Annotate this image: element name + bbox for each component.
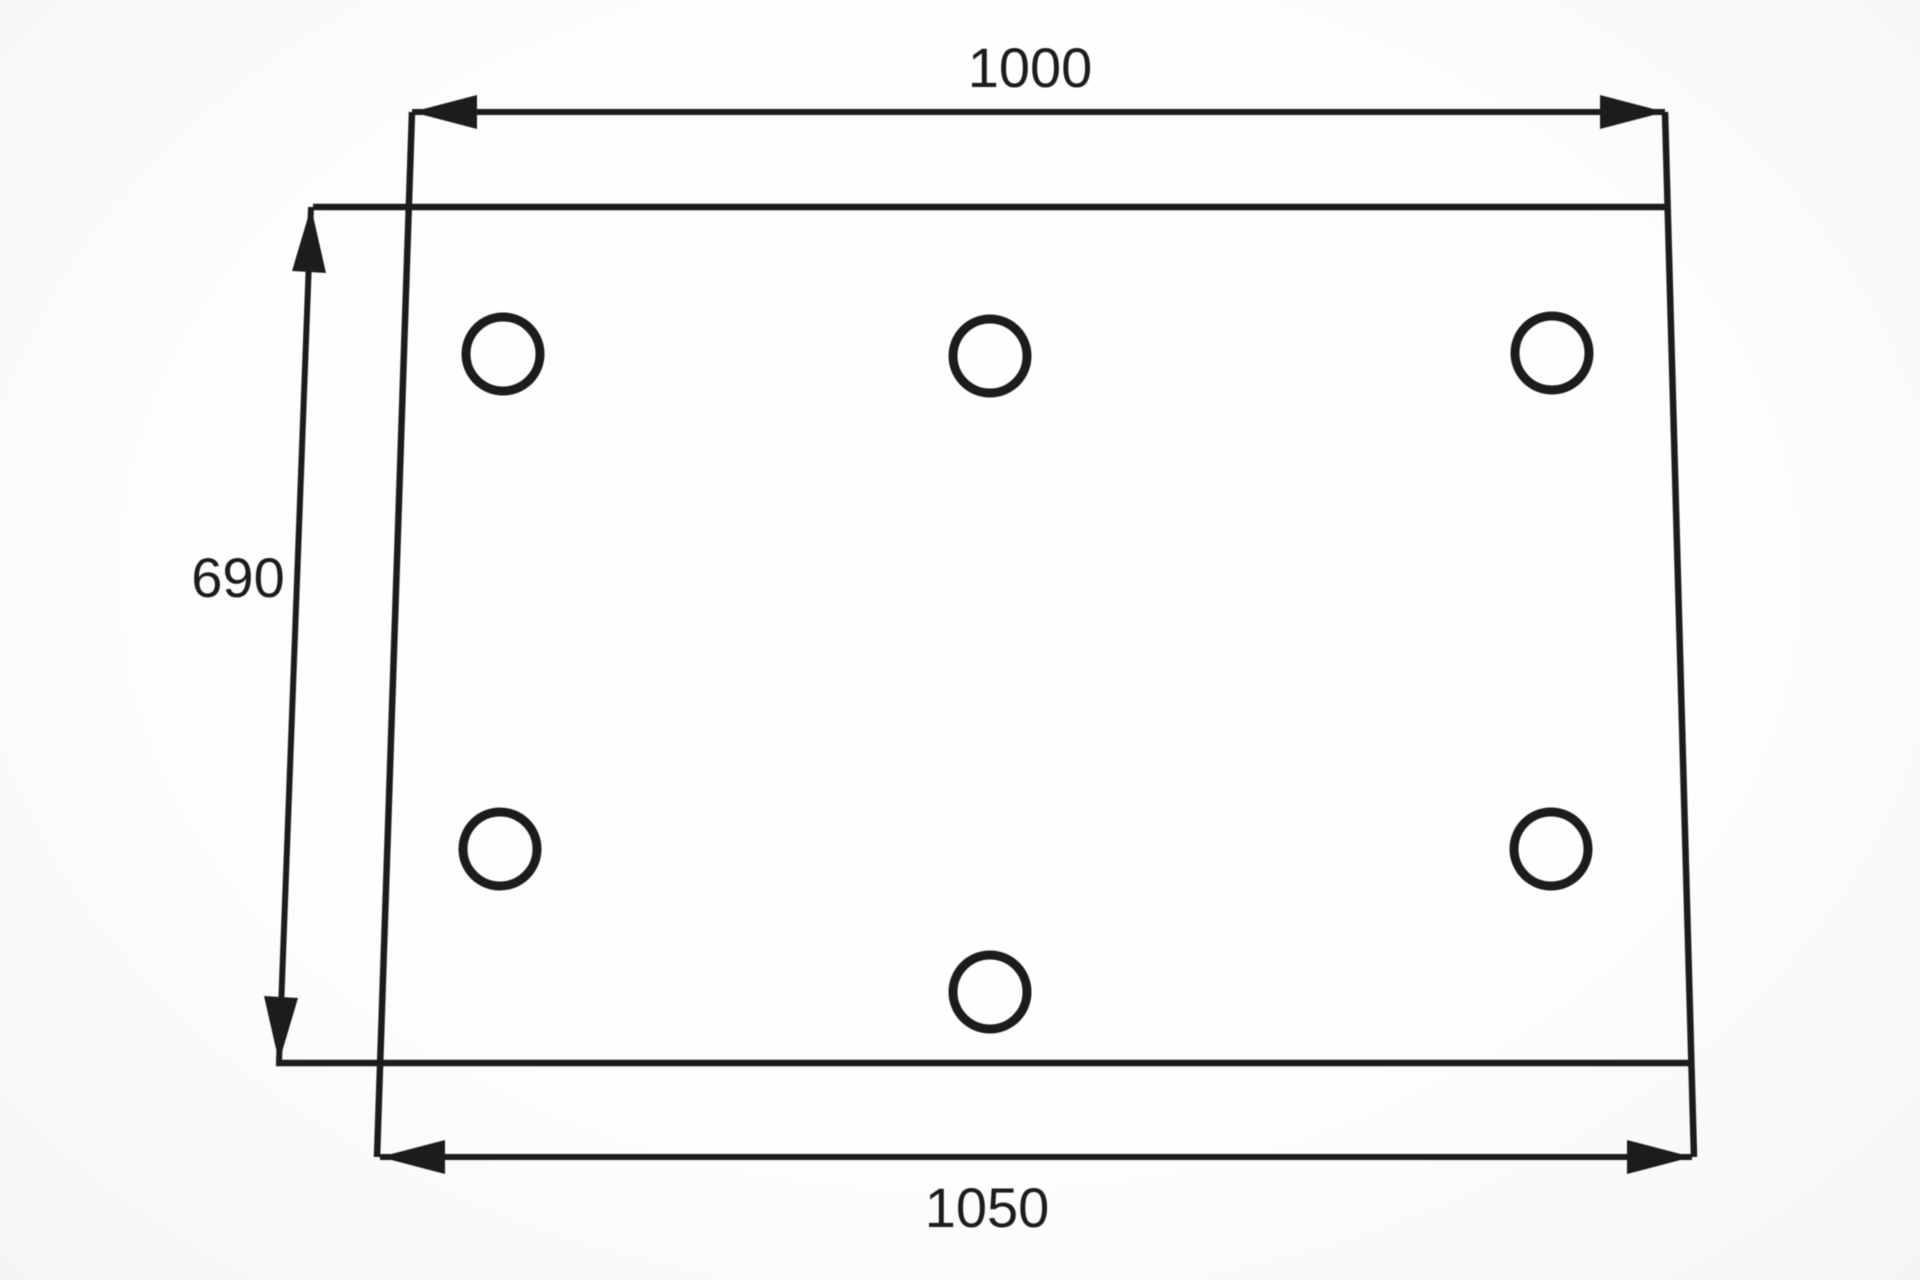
hole xyxy=(1514,812,1588,886)
dim-label-top: 1000 xyxy=(968,36,1093,99)
arrow-right-icon xyxy=(1600,95,1665,129)
hole xyxy=(953,319,1027,393)
arrow-left-icon xyxy=(412,95,477,129)
arrow-up-icon xyxy=(292,207,326,273)
holes-group xyxy=(463,316,1589,1029)
dim-label-bottom: 1050 xyxy=(925,1176,1050,1239)
hole xyxy=(953,955,1027,1029)
arrow-left-icon xyxy=(380,1140,445,1174)
panel-edge-left xyxy=(377,112,412,1157)
drawing-page: 1000 690 1050 xyxy=(0,0,1920,1280)
arrow-right-icon xyxy=(1627,1140,1692,1174)
hole xyxy=(466,317,540,391)
dim-label-left: 690 xyxy=(191,546,284,609)
dimension-bottom: 1050 xyxy=(380,1140,1692,1239)
panel-edge-right xyxy=(1665,112,1694,1157)
arrow-down-icon xyxy=(264,996,298,1062)
dimension-top: 1000 xyxy=(412,36,1665,129)
dim-line-left xyxy=(279,207,311,1062)
hole xyxy=(463,812,537,886)
dimension-left: 690 xyxy=(191,207,326,1062)
hole xyxy=(1515,316,1589,390)
panel-outline xyxy=(276,112,1694,1157)
technical-drawing-canvas: 1000 690 1050 xyxy=(0,0,1920,1280)
